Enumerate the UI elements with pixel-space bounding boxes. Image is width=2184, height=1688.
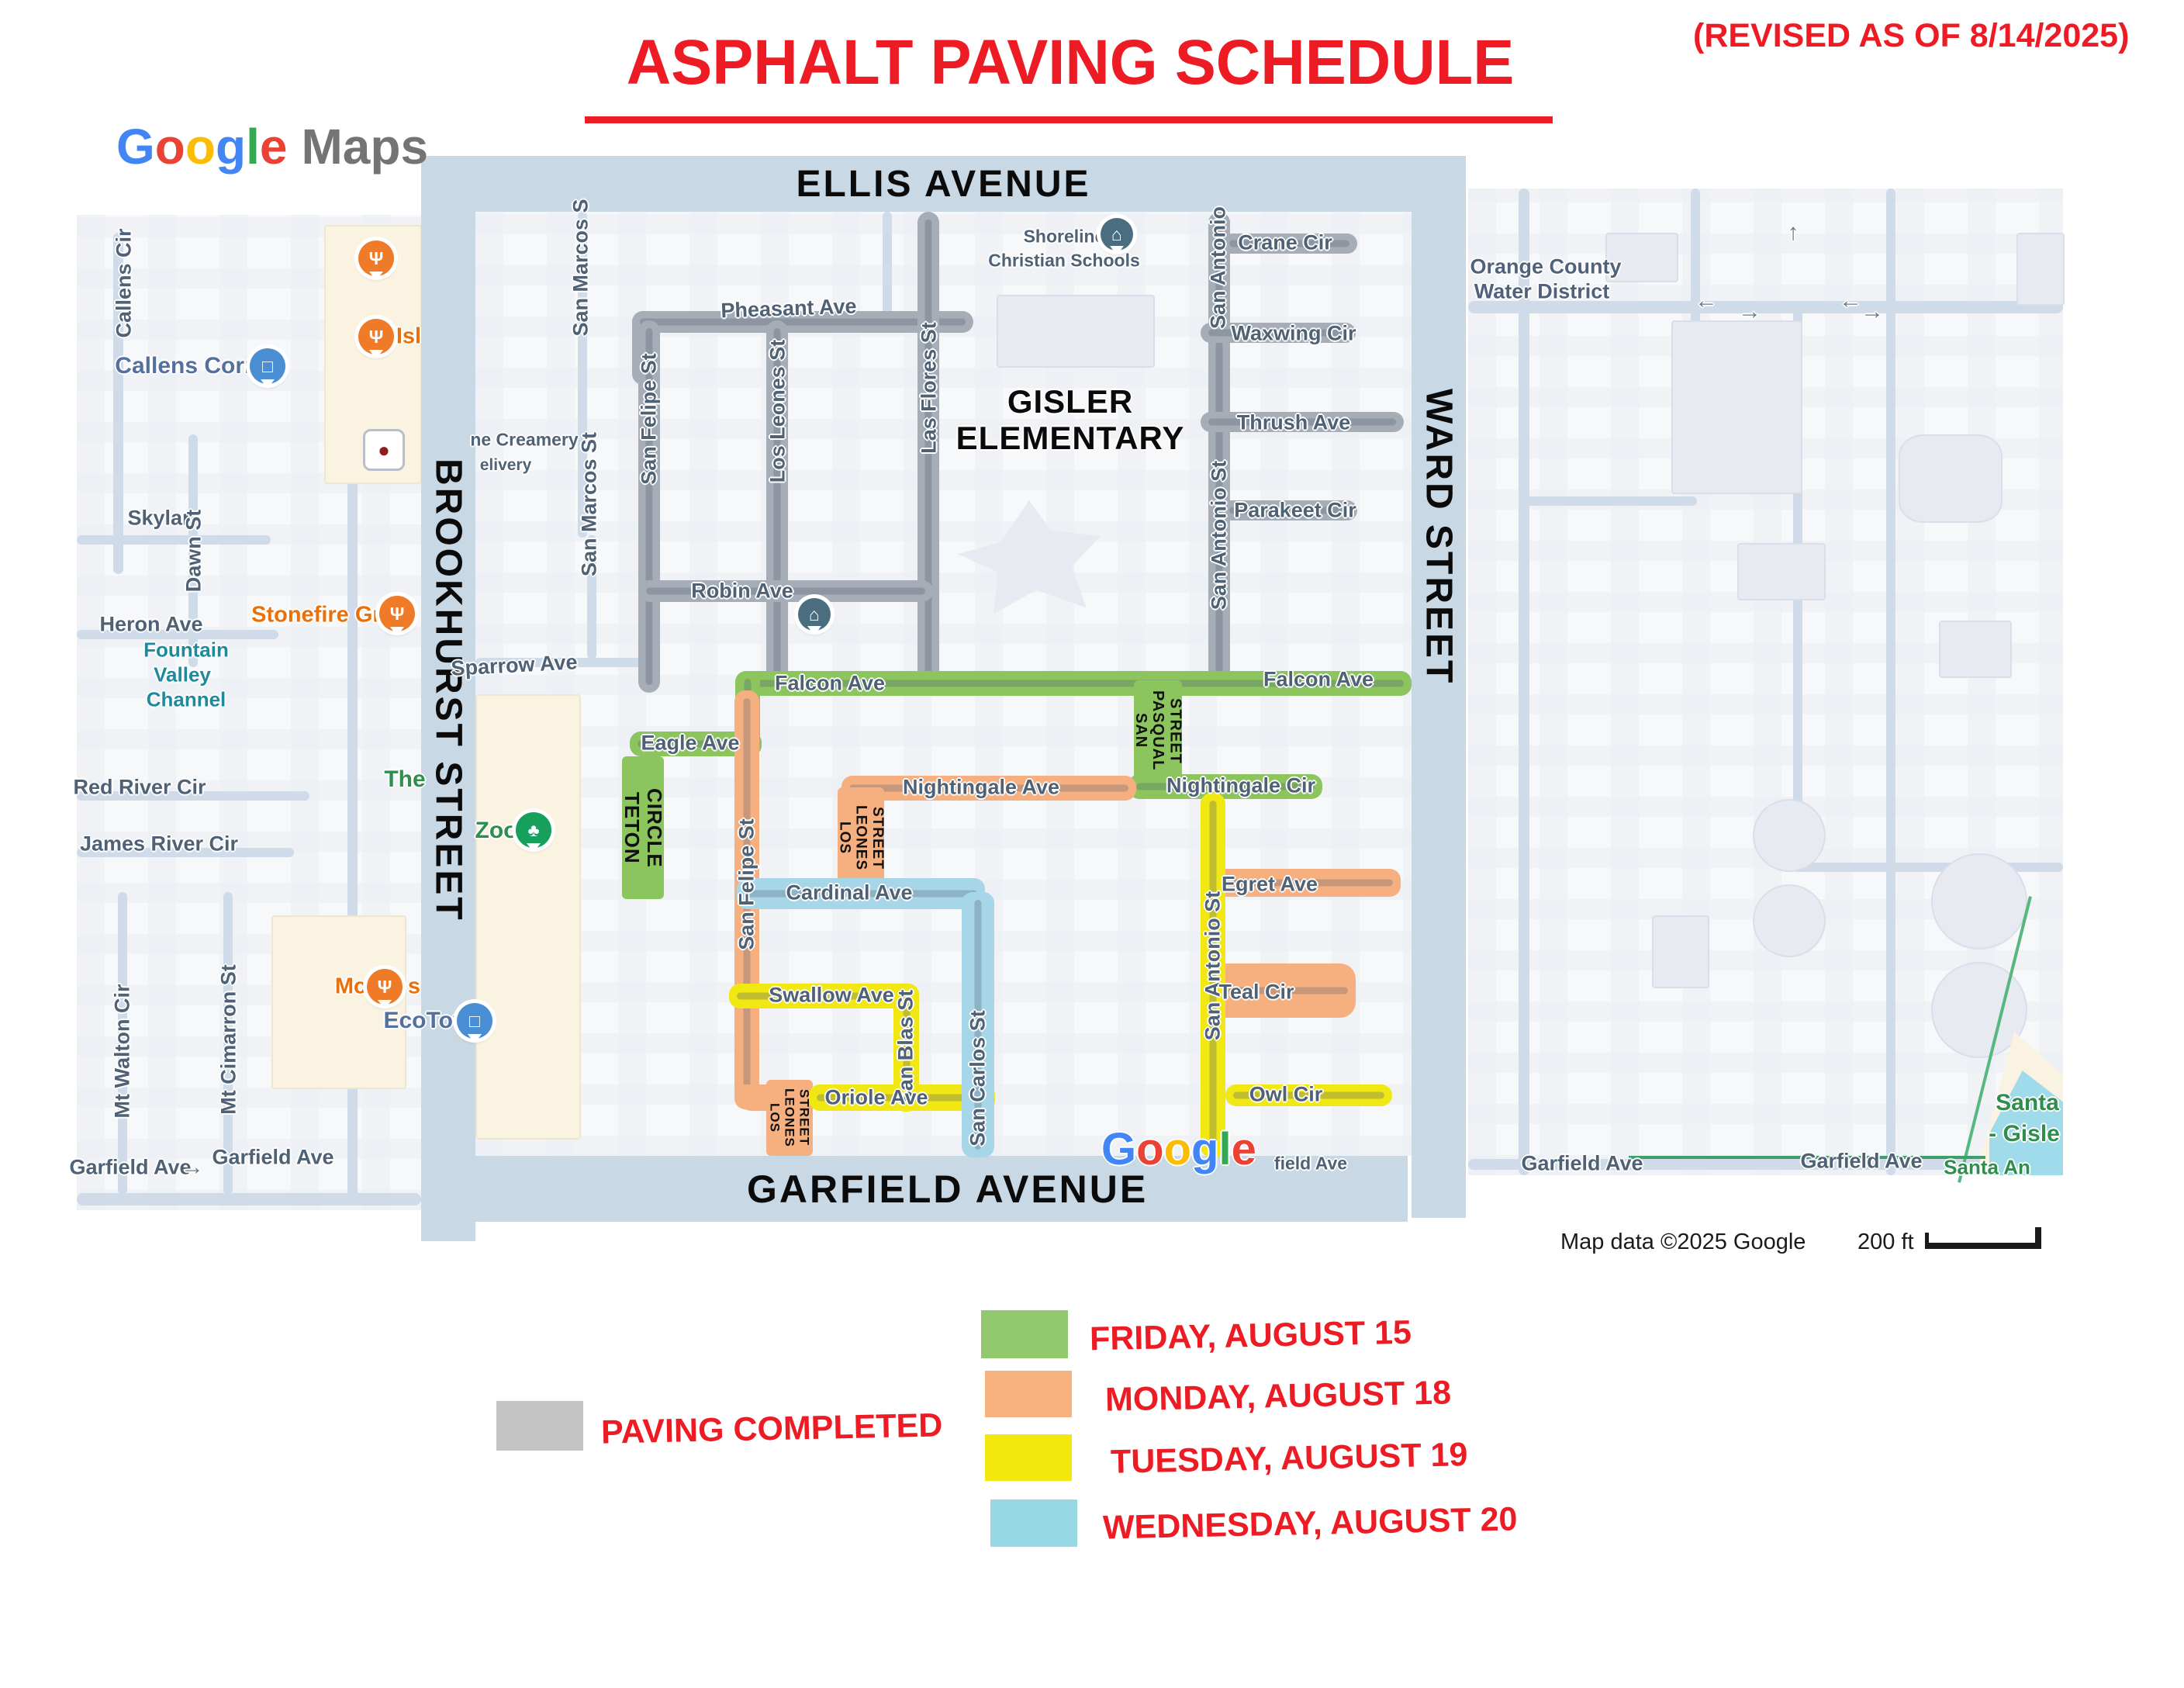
road [1519, 189, 1529, 1175]
legend-swatch-monday [985, 1371, 1072, 1417]
legend-label-monday: MONDAY, AUGUST 18 [1105, 1374, 1452, 1419]
google-watermark: Google [1101, 1123, 1256, 1175]
water-tank [1753, 884, 1826, 957]
street-label-heron: Heron Ave [99, 613, 202, 637]
street-label-garfield-right-1: Garfield Ave [1521, 1152, 1643, 1176]
street-label-callens-cir: Callens Cir [112, 228, 136, 337]
legend-swatch-completed [496, 1401, 583, 1451]
school-icon: ⌂ [1111, 224, 1122, 245]
arrow-left-icon: ← [1839, 288, 1862, 314]
street-label-crane: Crane Cir [1238, 231, 1332, 255]
street-label-teal: Teal Cir [1218, 981, 1294, 1005]
street-label-san-antonio-mid: San Antonio St [1208, 461, 1232, 610]
place-label-santa-2: - Gisle [1989, 1121, 2060, 1147]
street-label-garfield-right-2: Garfield Ave [1800, 1150, 1922, 1174]
zoo-plaza-area [475, 694, 581, 1140]
place-label-mc-s: s [408, 974, 420, 1000]
watermark-letter: g [1191, 1124, 1218, 1174]
place-label-santa-1: Santa [1996, 1090, 2059, 1116]
arrow-right-icon: → [1861, 299, 1884, 325]
water-district-basin [1671, 320, 1802, 494]
legend-swatch-wednesday [990, 1499, 1077, 1547]
water-label-channel-3: Channel [147, 688, 226, 712]
place-label-gisler-1: GISLER [1007, 383, 1133, 420]
legend-label-completed: PAVING COMPLETED [601, 1406, 943, 1451]
restaurant-pin: Ψ [358, 240, 394, 276]
road [77, 535, 271, 545]
street-label-owl: Owl Cir [1249, 1083, 1323, 1107]
scale-bar [1925, 1227, 2041, 1249]
street-label-garfield-left: Garfield Ave [69, 1156, 191, 1180]
brookhurst-street-label: BROOKHURST STREET [427, 458, 470, 1241]
water-tank [1931, 853, 2027, 949]
place-label-ocwd-2: Water District [1474, 280, 1610, 304]
street-label-swallow: Swallow Ave [769, 984, 894, 1008]
legend-label-friday: FRIDAY, AUGUST 15 [1090, 1314, 1412, 1359]
logo-letter: o [155, 119, 185, 175]
water-label-channel-2: Valley [154, 663, 211, 687]
fork-knife-icon: Ψ [369, 327, 384, 348]
paving-schedule-flyer: GoogleMaps ASPHALT PAVING SCHEDULE (REVI… [0, 0, 2184, 1688]
street-label-garfield-central: field Ave [1274, 1154, 1347, 1174]
watermark-letter: o [1164, 1124, 1191, 1174]
road [883, 212, 892, 320]
teton-circle-block-label: TETON CIRCLE [622, 756, 664, 899]
school-icon: ⌂ [809, 604, 820, 625]
garfield-road [77, 1193, 421, 1205]
title-underline [585, 116, 1553, 123]
street-label-san-antonio-lower: San Antonio St [1201, 891, 1225, 1040]
street-label-dawn: Dawn St [182, 510, 206, 593]
street-label-red-river: Red River Cir [73, 776, 206, 800]
street-label-mt-walton: Mt Walton Cir [111, 984, 135, 1119]
street-label-nightingale-cir: Nightingale Cir [1166, 774, 1315, 798]
street-label-nightingale-ave: Nightingale Ave [903, 776, 1059, 800]
ward-street-band: WARD STREET [1412, 156, 1466, 1218]
place-label-islands: Isl [396, 324, 421, 350]
restaurant-pin: Ψ [358, 319, 394, 355]
logo-letter: l [246, 119, 260, 175]
school-pin: ⌂ [1101, 218, 1133, 251]
paw-icon: ♣ [527, 820, 539, 841]
street-label-san-carlos: San Carlos St [966, 1010, 990, 1147]
street-label-mt-cimarron: Mt Cimarron St [217, 964, 241, 1115]
road [1793, 863, 2063, 872]
building [2016, 233, 2065, 306]
water-tank [1753, 799, 1826, 872]
shopping-pin: □ [250, 348, 285, 384]
ellis-avenue-label: ELLIS AVENUE [796, 163, 1090, 206]
logo-letter: G [116, 119, 155, 175]
place-label-creamery: ne Creamery [470, 430, 578, 451]
garfield-avenue-band: GARFIELD AVENUE [421, 1156, 1408, 1222]
logo-letter: o [185, 119, 216, 175]
google-maps-logo: GoogleMaps [116, 118, 428, 175]
street-label-los-leones-top: Los Leones St [766, 340, 790, 483]
arrow-right-icon: → [181, 1154, 204, 1181]
place-label-santa-ana: Santa An [1944, 1156, 2030, 1180]
logo-letter: e [260, 119, 288, 175]
building [1652, 915, 1709, 988]
legend-label-tuesday: TUESDAY, AUGUST 19 [1111, 1436, 1468, 1482]
san-pasqual-block-label: SAN PASQUAL STREET [1134, 680, 1182, 781]
place-label-gisler-2: ELEMENTARY [956, 420, 1185, 457]
watermark-letter: o [1136, 1124, 1163, 1174]
building [1737, 543, 1826, 600]
arrow-up-icon: ↑ [1788, 220, 1799, 246]
school-pin: ⌂ [798, 598, 831, 631]
street-label-waxwing: Waxwing Cir [1231, 322, 1356, 346]
place-label-shoreline-1: Shoreline [1024, 227, 1105, 247]
street-label-san-antonio-top: San Antonio [1207, 206, 1231, 329]
place-label-delivery: elivery [480, 456, 532, 475]
shopping-pin: □ [457, 1003, 492, 1039]
creamery-pin: ● [363, 429, 405, 471]
scale-label: 200 ft [1857, 1230, 1914, 1255]
street-label-robin: Robin Ave [691, 579, 793, 604]
place-label-stonefire: Stonefire Grill [251, 603, 400, 628]
fork-knife-icon: Ψ [369, 248, 384, 269]
street-label-egret: Egret Ave [1222, 873, 1318, 897]
map-data-attribution: Map data ©2025 Google [1560, 1230, 1806, 1255]
street-label-cardinal: Cardinal Ave [786, 881, 912, 905]
watermark-letter: l [1218, 1124, 1231, 1174]
shopping-bag-icon: □ [469, 1011, 480, 1032]
logo-maps-word: Maps [301, 119, 428, 175]
legend-label-wednesday: WEDNESDAY, AUGUST 20 [1103, 1500, 1518, 1547]
logo-letter: g [216, 119, 246, 175]
street-label-skylar: Skylar [127, 507, 190, 531]
zoo-pin: ♣ [516, 812, 551, 848]
street-label-james-river: James River Cir [80, 832, 238, 856]
place-label-the: The [384, 766, 425, 793]
street-label-pheasant: Pheasant Ave [721, 294, 857, 323]
restaurant-pin: Ψ [367, 969, 403, 1005]
place-label-ocwd-1: Orange County [1470, 255, 1621, 279]
shoreline-school-building [997, 295, 1155, 368]
street-label-falcon-west: Falcon Ave [775, 672, 885, 696]
water-district-tank-building [1899, 434, 2003, 523]
shopping-bag-icon: □ [262, 356, 273, 377]
street-label-parakeet: Parakeet Cir [1234, 499, 1356, 523]
watermark-letter: e [1232, 1124, 1256, 1174]
building [1939, 621, 2012, 678]
garfield-avenue-label: GARFIELD AVENUE [747, 1167, 1148, 1212]
street-label-san-felipe-top: San Felipe St [638, 353, 662, 485]
street-label-san-marcos-top: San Marcos S [569, 199, 593, 336]
page-title: ASPHALT PAVING SCHEDULE [558, 26, 1581, 99]
street-label-san-felipe-mid: San Felipe St [735, 818, 759, 950]
street-label-eagle: Eagle Ave [641, 732, 739, 756]
street-label-thrush: Thrush Ave [1237, 411, 1351, 435]
fork-knife-icon: Ψ [390, 604, 405, 624]
street-label-oriole: Oriole Ave [824, 1086, 928, 1110]
brookhurst-street-band: BROOKHURST STREET [421, 156, 475, 1241]
los-leones-lower-block-label: LOS LEONES STREET [766, 1080, 813, 1156]
ice-cream-icon: ● [378, 438, 390, 462]
street-label-falcon-east: Falcon Ave [1263, 668, 1374, 692]
legend-swatch-friday [981, 1310, 1068, 1358]
legend-swatch-tuesday [985, 1434, 1072, 1481]
restaurant-pin: Ψ [379, 596, 415, 631]
arrow-left-icon: ← [1695, 288, 1718, 314]
los-leones-upper-block-label: LOS LEONES STREET [838, 787, 884, 888]
street-label-san-marcos-mid: San Marcos St [578, 432, 602, 576]
ward-street-label: WARD STREET [1418, 389, 1460, 1218]
revision-note: (REVISED AS OF 8/14/2025) [1693, 17, 2129, 55]
watermark-letter: G [1101, 1124, 1136, 1174]
street-label-las-flores: Las Flores St [917, 322, 942, 454]
road [1886, 189, 1895, 1175]
fork-knife-icon: Ψ [378, 977, 392, 998]
place-label-mc: Mc [335, 974, 366, 1000]
water-label-channel-1: Fountain [143, 638, 229, 662]
place-label-zoo: Zoo [475, 818, 518, 844]
road [1519, 496, 1697, 506]
arrow-right-icon: → [1738, 299, 1761, 325]
street-label-garfield-left-2: Garfield Ave [212, 1146, 333, 1170]
